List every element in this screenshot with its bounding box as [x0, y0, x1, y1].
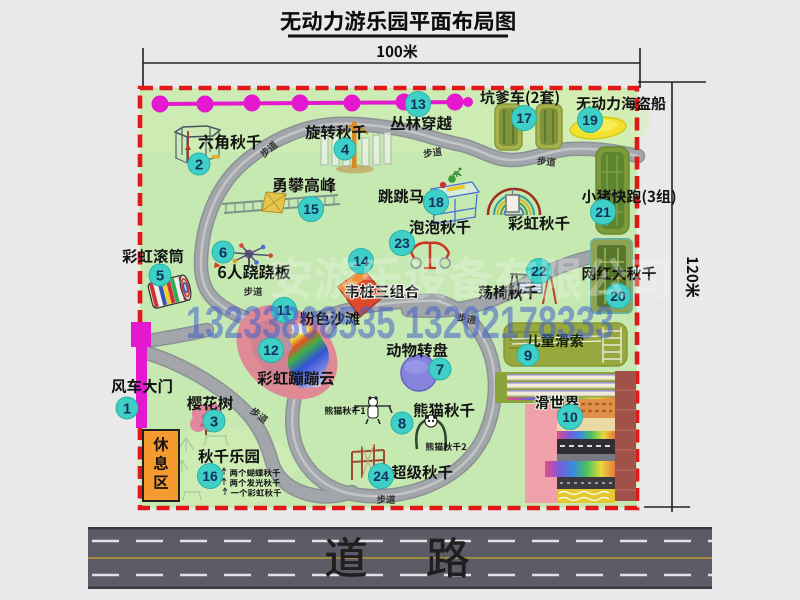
- svg-text:19: 19: [582, 112, 598, 128]
- svg-text:24: 24: [373, 468, 389, 484]
- svg-text:10: 10: [562, 409, 578, 425]
- svg-text:5: 5: [156, 267, 164, 284]
- svg-text:15: 15: [303, 201, 319, 217]
- svg-text:21: 21: [595, 204, 611, 220]
- svg-text:18: 18: [428, 194, 444, 210]
- svg-text:3: 3: [210, 413, 218, 430]
- svg-text:2: 2: [195, 156, 203, 173]
- svg-text:8: 8: [398, 415, 406, 432]
- svg-text:13233808535 13202178333: 13233808535 13202178333: [186, 297, 614, 348]
- svg-text:7: 7: [436, 361, 444, 378]
- svg-text:4: 4: [341, 141, 350, 158]
- svg-text:6: 6: [219, 244, 227, 261]
- svg-text:17: 17: [516, 110, 532, 126]
- svg-text:23: 23: [394, 235, 410, 251]
- svg-text:16: 16: [202, 468, 218, 484]
- svg-text:1: 1: [123, 400, 131, 417]
- svg-text:13: 13: [410, 96, 426, 112]
- svg-text:9: 9: [524, 347, 532, 364]
